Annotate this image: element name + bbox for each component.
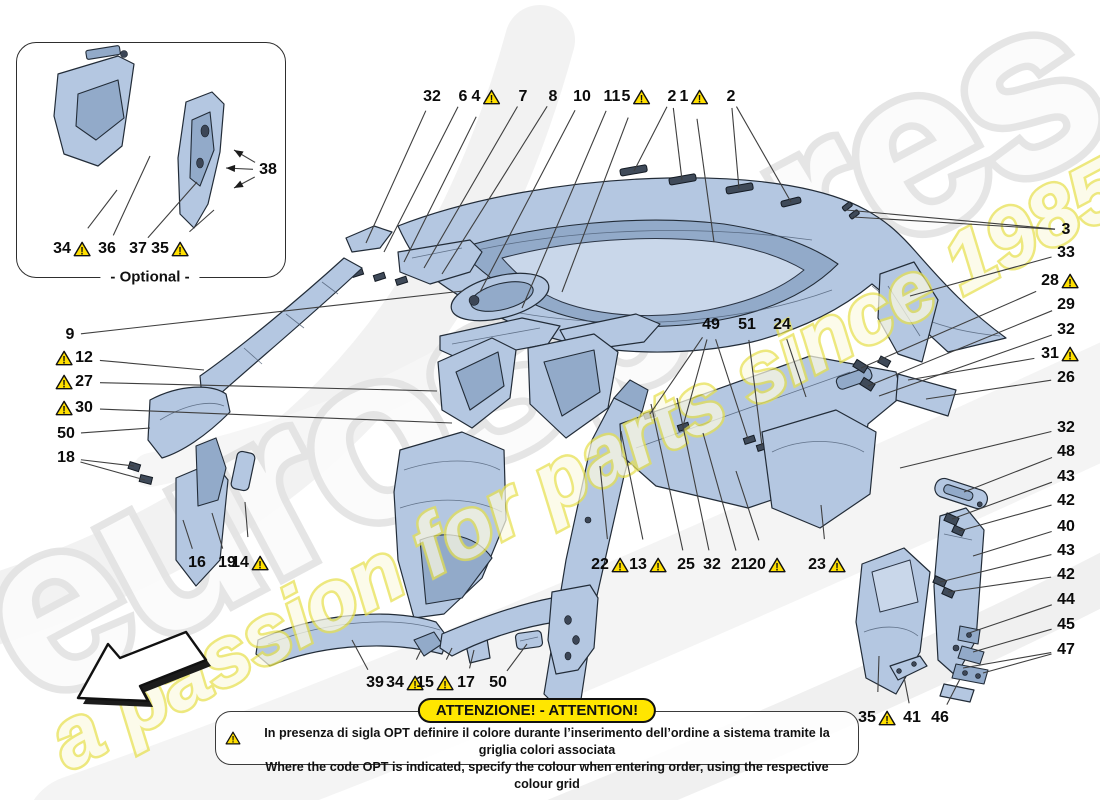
callout-32[interactable]: 32	[1057, 419, 1075, 437]
callout-number: 3	[1062, 221, 1071, 239]
callout-number: 46	[931, 709, 949, 727]
callout-number: 8	[549, 88, 558, 106]
warning-icon: !	[225, 731, 241, 750]
callout-5[interactable]: 5!	[622, 88, 651, 106]
svg-text:!: !	[618, 561, 622, 573]
attention-line-italian: In presenza di sigla OPT definire il col…	[246, 725, 848, 759]
callout-number: 42	[1057, 566, 1075, 584]
callout-4[interactable]: 4!	[472, 88, 501, 106]
callout-29[interactable]: 29	[1057, 296, 1075, 314]
warning-icon: !	[1061, 346, 1079, 362]
callout-23[interactable]: 23!	[808, 556, 846, 574]
callout-32[interactable]: 32	[423, 88, 441, 106]
callout-number: 51	[738, 316, 756, 334]
callout-number: 43	[1057, 468, 1075, 486]
callout-40[interactable]: 40	[1057, 518, 1075, 536]
callout-number: 4	[472, 88, 481, 106]
callout-6[interactable]: 6	[459, 88, 468, 106]
callout-number: 32	[1057, 321, 1075, 339]
callout-9[interactable]: 9	[66, 326, 75, 344]
svg-text:!: !	[775, 561, 779, 573]
svg-text:!: !	[62, 354, 66, 366]
callout-10[interactable]: 10	[573, 88, 591, 106]
callout-43[interactable]: 43	[1057, 542, 1075, 560]
callout-48[interactable]: 48	[1057, 443, 1075, 461]
callout-37[interactable]: 37	[129, 240, 147, 258]
callout-25[interactable]: 25	[677, 556, 695, 574]
callout-2[interactable]: 2	[668, 88, 677, 106]
callout-number: 36	[98, 240, 116, 258]
callout-44[interactable]: 44	[1057, 591, 1075, 609]
callout-number: 25	[677, 556, 695, 574]
warning-icon: !	[828, 557, 846, 573]
callout-16[interactable]: 16	[188, 554, 206, 572]
callout-32[interactable]: 32	[703, 556, 721, 574]
callout-number: 9	[66, 326, 75, 344]
callout-number: 1	[680, 88, 689, 106]
callout-number: 15	[416, 674, 434, 692]
warning-icon: !	[649, 557, 667, 573]
callout-number: 23	[808, 556, 826, 574]
callout-number: 12	[75, 349, 93, 367]
callout-number: 41	[903, 709, 921, 727]
callout-17[interactable]: 17	[457, 674, 475, 692]
callout-number: 21	[731, 556, 749, 574]
callout-number: 11	[604, 88, 621, 106]
warning-icon: !	[73, 241, 91, 257]
callout-31[interactable]: 31!	[1041, 345, 1079, 363]
warning-icon: !	[690, 89, 708, 105]
callout-28[interactable]: 28!	[1041, 272, 1079, 290]
callout-number: 44	[1057, 591, 1075, 609]
svg-text:!: !	[62, 378, 66, 390]
callout-number: 33	[1057, 244, 1075, 262]
callout-35[interactable]: 35!	[858, 709, 896, 727]
warning-icon: !	[436, 675, 454, 691]
warning-icon: !	[611, 557, 629, 573]
warning-icon: !	[482, 89, 500, 105]
callout-13[interactable]: 13!	[629, 556, 667, 574]
callout-32[interactable]: 32	[1057, 321, 1075, 339]
callout-number: 34	[53, 240, 71, 258]
callout-number: 6	[459, 88, 468, 106]
attention-title: ATTENZIONE! - ATTENTION!	[418, 698, 656, 723]
callout-22[interactable]: 22!	[591, 556, 629, 574]
svg-text:!: !	[258, 559, 262, 571]
svg-text:!: !	[178, 245, 182, 257]
callout-number: 48	[1057, 443, 1075, 461]
attention-line-english: Where the code OPT is indicated, specify…	[246, 759, 848, 793]
callout-24[interactable]: 24	[773, 316, 791, 334]
callout-35[interactable]: 35!	[151, 240, 189, 258]
svg-text:!: !	[231, 735, 234, 745]
callout-30[interactable]: !30	[55, 399, 93, 417]
callout-number: 27	[75, 373, 93, 391]
callout-number: 29	[1057, 296, 1075, 314]
callout-number: 18	[57, 449, 75, 467]
callout-number: 26	[1057, 369, 1075, 387]
callout-number: 42	[1057, 492, 1075, 510]
callout-50[interactable]: 50	[489, 674, 507, 692]
callout-number: 2	[727, 88, 736, 106]
svg-text:!: !	[640, 93, 644, 105]
optional-box-label: - Optional -	[100, 269, 199, 286]
callout-14[interactable]: 14!	[231, 554, 269, 572]
callout-15[interactable]: 15!	[416, 674, 454, 692]
callout-number: 50	[57, 425, 75, 443]
warning-icon: !	[225, 731, 241, 745]
svg-text:!: !	[1068, 350, 1072, 362]
svg-text:!: !	[835, 561, 839, 573]
callout-number: 14	[231, 554, 249, 572]
callout-11[interactable]: 11	[604, 88, 621, 106]
callout-41[interactable]: 41	[903, 709, 921, 727]
callout-21[interactable]: 21	[731, 556, 749, 574]
callout-46[interactable]: 46	[931, 709, 949, 727]
svg-text:!: !	[62, 404, 66, 416]
callout-number: 39	[366, 674, 384, 692]
callout-36[interactable]: 36	[98, 240, 116, 258]
callout-number: 16	[188, 554, 206, 572]
callout-number: 32	[1057, 419, 1075, 437]
callout-39[interactable]: 39	[366, 674, 384, 692]
callout-47[interactable]: 47	[1057, 641, 1075, 659]
callout-number: 10	[573, 88, 591, 106]
callout-33[interactable]: 33	[1057, 244, 1075, 262]
callout-number: 13	[629, 556, 647, 574]
callout-number: 38	[259, 161, 277, 179]
callout-number: 20	[748, 556, 766, 574]
callout-number: 32	[703, 556, 721, 574]
warning-icon: !	[55, 400, 73, 416]
callout-3[interactable]: 3	[1062, 221, 1071, 239]
callout-number: 35	[151, 240, 169, 258]
callout-number: 45	[1057, 616, 1075, 634]
callout-number: 2	[668, 88, 677, 106]
warning-icon: !	[878, 710, 896, 726]
callout-26[interactable]: 26	[1057, 369, 1075, 387]
callout-number: 17	[457, 674, 475, 692]
svg-text:!: !	[490, 93, 494, 105]
callout-38[interactable]: 38	[259, 161, 277, 179]
callout-number: 5	[622, 88, 631, 106]
warning-icon: !	[1061, 273, 1079, 289]
callout-27[interactable]: !27	[55, 373, 93, 391]
callout-number: 32	[423, 88, 441, 106]
callout-number: 34	[386, 674, 404, 692]
attention-panel: ATTENZIONE! - ATTENTION! ! In presenza d…	[215, 711, 859, 765]
callout-1[interactable]: 1!	[680, 88, 709, 106]
warning-icon: !	[251, 555, 269, 571]
callout-43[interactable]: 43	[1057, 468, 1075, 486]
warning-icon: !	[55, 374, 73, 390]
callout-50[interactable]: 50	[57, 425, 75, 443]
callout-number: 47	[1057, 641, 1075, 659]
callout-number: 24	[773, 316, 791, 334]
svg-text:!: !	[656, 561, 660, 573]
callout-number: 30	[75, 399, 93, 417]
warning-icon: !	[632, 89, 650, 105]
callout-51[interactable]: 51	[738, 316, 756, 334]
warning-icon: !	[171, 241, 189, 257]
callout-42[interactable]: 42	[1057, 492, 1075, 510]
callout-2[interactable]: 2	[727, 88, 736, 106]
svg-text:!: !	[698, 93, 702, 105]
callout-number: 37	[129, 240, 147, 258]
callout-18[interactable]: 18	[57, 449, 75, 467]
callout-49[interactable]: 49	[702, 316, 720, 334]
callout-20[interactable]: 20!	[748, 556, 786, 574]
callout-number: 28	[1041, 272, 1059, 290]
callout-34[interactable]: 34!	[53, 240, 91, 258]
svg-text:!: !	[885, 714, 889, 726]
callout-number: 22	[591, 556, 609, 574]
callout-number: 49	[702, 316, 720, 334]
callout-42[interactable]: 42	[1057, 566, 1075, 584]
svg-text:!: !	[1068, 277, 1072, 289]
callout-number: 40	[1057, 518, 1075, 536]
headliner-parts-diagram: eurospares	[0, 0, 1100, 800]
warning-icon: !	[55, 350, 73, 366]
callout-number: 31	[1041, 345, 1059, 363]
callout-7[interactable]: 7	[519, 88, 528, 106]
callout-12[interactable]: !12	[55, 349, 93, 367]
callout-number: 35	[858, 709, 876, 727]
svg-text:!: !	[443, 679, 447, 691]
warning-icon: !	[768, 557, 786, 573]
callout-number: 50	[489, 674, 507, 692]
callout-8[interactable]: 8	[549, 88, 558, 106]
svg-text:!: !	[80, 245, 84, 257]
callout-number: 43	[1057, 542, 1075, 560]
callout-number: 7	[519, 88, 528, 106]
callout-45[interactable]: 45	[1057, 616, 1075, 634]
